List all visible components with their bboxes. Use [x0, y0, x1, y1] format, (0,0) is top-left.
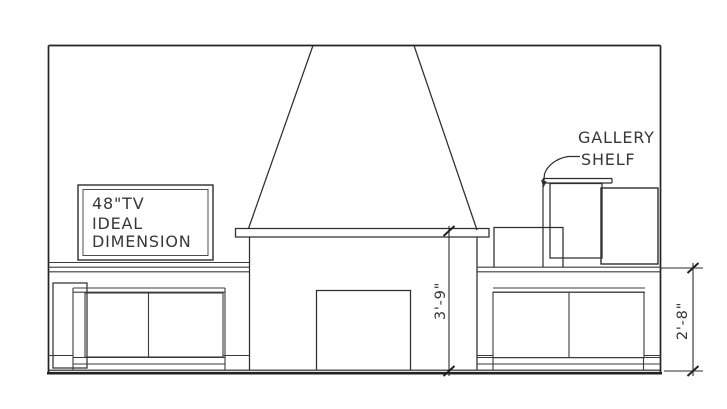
tv-note-line-2: IDEAL — [92, 214, 143, 233]
gallery-shelf-group — [494, 179, 658, 268]
gallery-shelf-label-line-2: SHELF — [581, 150, 635, 169]
dimension-fireplace-height: 3'-9" — [433, 226, 455, 376]
left-cabinet-top-rail — [73, 288, 225, 292]
right-cabinet-top-rail — [493, 288, 645, 292]
tv-note-line-1: 48"TV — [92, 194, 144, 213]
picture-frame-left — [550, 184, 602, 259]
tv-annotation: 48"TV IDEAL DIMENSION — [78, 185, 213, 260]
fireplace-elevation-drawing: 48"TV IDEAL DIMENSION GALLERY SHELF 3'-9… — [0, 0, 727, 409]
firebox-opening — [317, 291, 411, 371]
right-cabinet — [477, 288, 661, 370]
left-cabinet — [48, 283, 249, 370]
gallery-shelf-board — [543, 179, 612, 184]
leader-arrowhead — [541, 180, 547, 188]
right-counter — [477, 267, 661, 272]
tv-note-line-3: DIMENSION — [92, 232, 192, 251]
chimney-hood — [249, 46, 478, 231]
left-cabinet-doors — [85, 293, 223, 357]
gallery-shelf-label-line-1: GALLERY — [578, 128, 655, 147]
elevation-drawing-canvas: 48"TV IDEAL DIMENSION GALLERY SHELF 3'-9… — [0, 0, 727, 409]
dimension-text-3-9: 3'-9" — [433, 282, 449, 320]
left-cabinet-bottom-rails — [73, 358, 225, 365]
counter-box — [494, 228, 563, 268]
hood-right-slope-line — [414, 46, 477, 231]
left-counter — [48, 263, 249, 272]
picture-frame-right — [601, 188, 658, 264]
dimension-text-2-8: 2'-8" — [675, 302, 691, 340]
right-cabinet-bottom-rails — [477, 358, 661, 365]
hood-left-slope-line — [249, 46, 314, 229]
fireplace — [236, 229, 490, 371]
dimension-counter-height: 2'-8" — [661, 263, 703, 376]
